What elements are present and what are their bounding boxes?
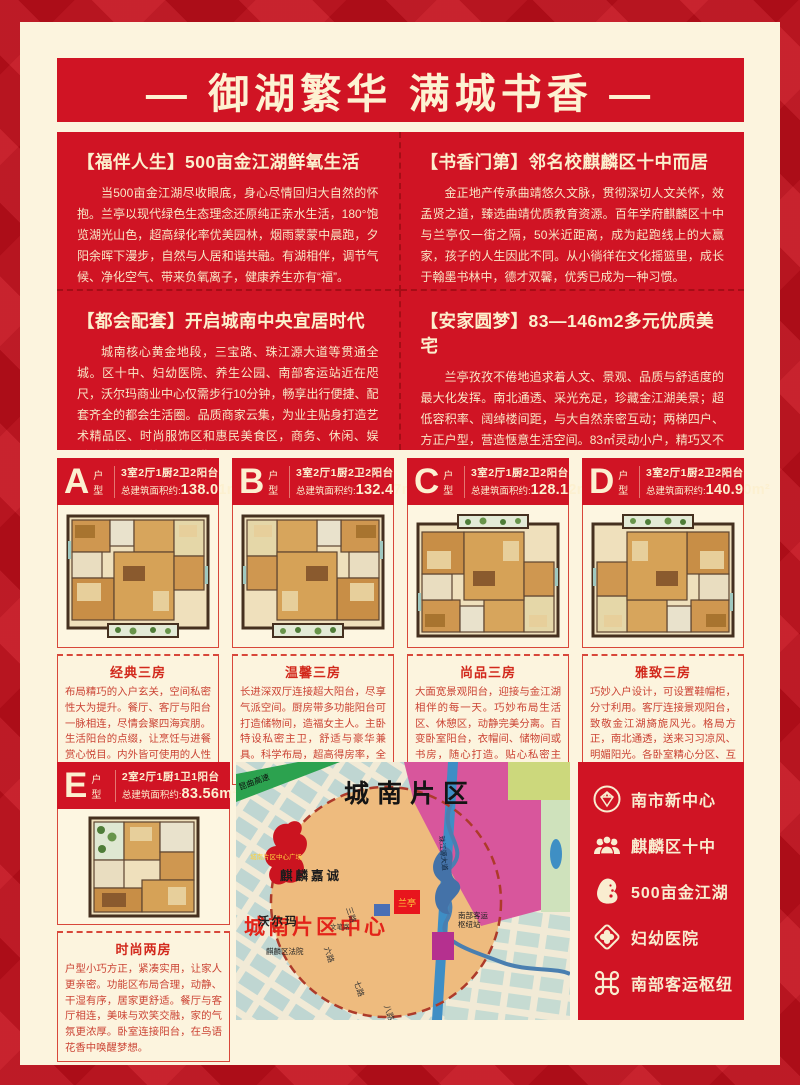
unit-area: 总建筑面积约:128.12m² [471,482,562,498]
poster-title: — 御湖繁华 满城书香 — [146,60,655,120]
medical-cross-icon [592,922,622,952]
floor-plan-drawing [84,813,204,921]
section-scholarly-home: 【书香门第】邻名校麒麟区十中而居 金正地产传承曲靖悠久文脉，贯彻深切人文关怀，效… [401,132,745,291]
unit-card-b: B 户型 3室2厅1厨2卫2阳台 总建筑面积约:132.47m² 温馨三房 长进… [232,458,394,785]
sidebar-label: 妇幼医院 [631,925,699,949]
unit-area-value: 140.90m² [706,482,770,498]
sidebar-item-transit: 南部客运枢纽 [592,968,738,998]
unit-spec: 3室2厅1厨2卫2阳台 [646,465,737,480]
unit-header: A 户型 3室2厅1厨2卫2阳台 总建筑面积约:138.01m² [57,458,219,505]
unit-name: 雅致三房 [590,662,736,681]
section-body: 城南核心黄金地段，三宝路、珠江源大道等贯通全城。区十中、妇幼医院、养生公园、南部… [77,342,379,450]
section-metro-amenities: 【都会配套】开启城南中央宜居时代 城南核心黄金地段，三宝路、珠江源大道等贯通全城… [57,291,401,450]
unit-area: 总建筑面积约:83.56m² [122,786,223,802]
floor-plan-drawing [238,511,388,641]
unit-desc-text: 户型小巧方正，紧凑实用，让家人更亲密。功能区布局合理，动静、干湿有序，居家更舒适… [65,962,222,1057]
floor-plan-image [232,505,394,648]
unit-type-label: 户型 [618,467,633,497]
floor-plan-image [582,505,744,648]
section-body: 金正地产传承曲靖悠久文脉，贯彻深切人文关怀，效孟贤之道，臻选曲靖优质教育资源。百… [421,183,725,287]
floor-plan-image [57,809,230,925]
sidebar-item-hospital: 妇幼医院 [592,922,738,952]
map-plaza-label: 城南片区中心广场 [250,852,303,861]
map-estate-label: 麒麟嘉诚 [280,868,342,883]
transit-hub-icon [592,968,622,998]
map-district-label: 城南片区 [344,780,476,808]
unit-description: 时尚两房 户型小巧方正，紧凑实用，让家人更亲密。功能区布局合理，动静、干湿有序，… [57,931,230,1062]
unit-letter: A [64,464,89,499]
unit-header: D 户型 3室2厅1厨2卫2阳台 总建筑面积约:140.90m² [582,458,744,505]
divider [639,466,640,498]
unit-letter: E [64,768,87,803]
section-fuban-life: 【福伴人生】500亩金江湖鲜氧生活 当500亩金江湖尽收眼底，身心尽情回归大自然… [57,132,401,291]
unit-type-label: 户型 [443,467,458,497]
map-hub-label-2: 枢纽站 [458,919,481,929]
unit-spec: 3室2厅1厨2卫2阳台 [471,465,562,480]
section-body: 当500亩金江湖尽收眼底，身心尽情回归大自然的怀抱。兰亭以现代绿色生态理念还原纯… [77,183,379,287]
location-map: 城南片区 城南片区中心 昆曲高速 城南片区中心广场 麒麟嘉诚 沃尔玛 兰亭 南部… [236,762,570,1020]
unit-card-d: D 户型 3室2厅1厨2卫2阳台 总建筑面积约:140.90m² 雅致三房 巧妙… [582,458,744,801]
map-hub-label-1: 南部客运 [458,910,488,920]
info-panel: 【福伴人生】500亩金江湖鲜氧生活 当500亩金江湖尽收眼底，身心尽情回归大自然… [57,132,744,450]
unit-area-label: 总建筑面积约: [121,486,181,497]
section-heading: 【都会配套】开启城南中央宜居时代 [77,308,379,333]
sidebar-item-lake: 500亩金江湖 [592,876,738,906]
divider [115,770,116,802]
divider [464,466,465,498]
unit-name: 温馨三房 [240,662,386,681]
unit-name: 时尚两房 [65,939,222,958]
unit-type-label: 户型 [268,467,283,497]
map-small-lake [550,839,562,869]
map-drawing: 城南片区 城南片区中心 昆曲高速 城南片区中心广场 麒麟嘉诚 沃尔玛 兰亭 南部… [236,762,570,1020]
unit-area: 总建筑面积约:140.90m² [646,482,737,498]
divider [114,466,115,498]
section-dream-home: 【安家圆梦】83—146m2多元优质美宅 兰亭孜孜不倦地追求着人文、景观、品质与… [401,291,745,450]
unit-spec: 3室2厅1厨2卫2阳台 [121,465,212,480]
floor-plan-drawing [413,511,563,641]
map-road-label: 文笔路 [330,922,350,931]
diamond-icon [592,784,622,814]
unit-area: 总建筑面积约:132.47m² [296,482,387,498]
unit-name: 尚品三房 [415,662,561,681]
unit-header: E 户型 2室2厅1厨1卫1阳台 总建筑面积约:83.56m² [57,762,230,809]
unit-card-a: A 户型 3室2厅1厨2卫2阳台 总建筑面积约:138.01m² 经典三房 布局… [57,458,219,785]
map-court-label: 麒麟区法院 [266,946,304,956]
poster-frame: — 御湖繁华 满城书香 — 【福伴人生】500亩金江湖鲜氧生活 当500亩金江湖… [20,22,780,1065]
unit-area-value: 83.56m² [181,786,237,802]
unit-card-e: E 户型 2室2厅1厨1卫1阳台 总建筑面积约:83.56m² 时尚两房 户型小… [57,762,230,1062]
map-green-zone [508,762,570,800]
sidebar-label: 南市新中心 [631,787,716,811]
unit-area: 总建筑面积约:138.01m² [121,482,212,498]
lake-icon [592,876,622,906]
sidebar-label: 麒麟区十中 [631,833,716,857]
unit-type-label: 户型 [91,771,108,801]
floor-plan-drawing [63,511,213,641]
floor-plan-image [407,505,569,648]
unit-spec: 2室2厅1厨1卫1阳台 [122,769,223,784]
section-heading: 【安家圆梦】83—146m2多元优质美宅 [421,308,725,358]
sidebar-item-school: 麒麟区十中 [592,830,738,860]
section-heading: 【书香门第】邻名校麒麟区十中而居 [421,149,725,174]
unit-area-label: 总建筑面积约: [122,790,182,801]
unit-header: C 户型 3室2厅1厨2卫2阳台 总建筑面积约:128.12m² [407,458,569,505]
sidebar-item-new-center: 南市新中心 [592,784,738,814]
unit-letter: C [414,464,439,499]
unit-card-c: C 户型 3室2厅1厨2卫2阳台 总建筑面积约:128.12m² 尚品三房 大面… [407,458,569,801]
section-heading: 【福伴人生】500亩金江湖鲜氧生活 [77,149,379,174]
map-hospital-block [432,932,454,960]
unit-name: 经典三房 [65,662,211,681]
unit-area-label: 总建筑面积约: [296,486,356,497]
floor-plan-image [57,505,219,648]
sidebar-label: 南部客运枢纽 [631,971,733,995]
divider [289,466,290,498]
unit-header: B 户型 3室2厅1厨2卫2阳台 总建筑面积约:132.47m² [232,458,394,505]
floor-plan-drawing [588,511,738,641]
people-icon [592,830,622,860]
unit-type-label: 户型 [93,467,108,497]
map-blue-block [374,904,390,916]
map-project-label: 兰亭 [398,897,416,908]
unit-letter: D [589,464,614,499]
unit-letter: B [239,464,264,499]
title-band: — 御湖繁华 满城书香 — [57,58,744,122]
section-body: 兰亭孜孜不倦地追求着人文、景观、品质与舒适度的最大化发挥。南北通透、采光充足，珍… [421,367,725,450]
amenities-sidebar: 南市新中心 麒麟区十中 500亩金江湖 [578,762,744,1020]
unit-area-label: 总建筑面积约: [471,486,531,497]
unit-spec: 3室2厅1厨2卫2阳台 [296,465,387,480]
map-walmart-label: 沃尔玛 [258,914,299,928]
sidebar-label: 500亩金江湖 [631,879,729,903]
unit-area-label: 总建筑面积约: [646,486,706,497]
